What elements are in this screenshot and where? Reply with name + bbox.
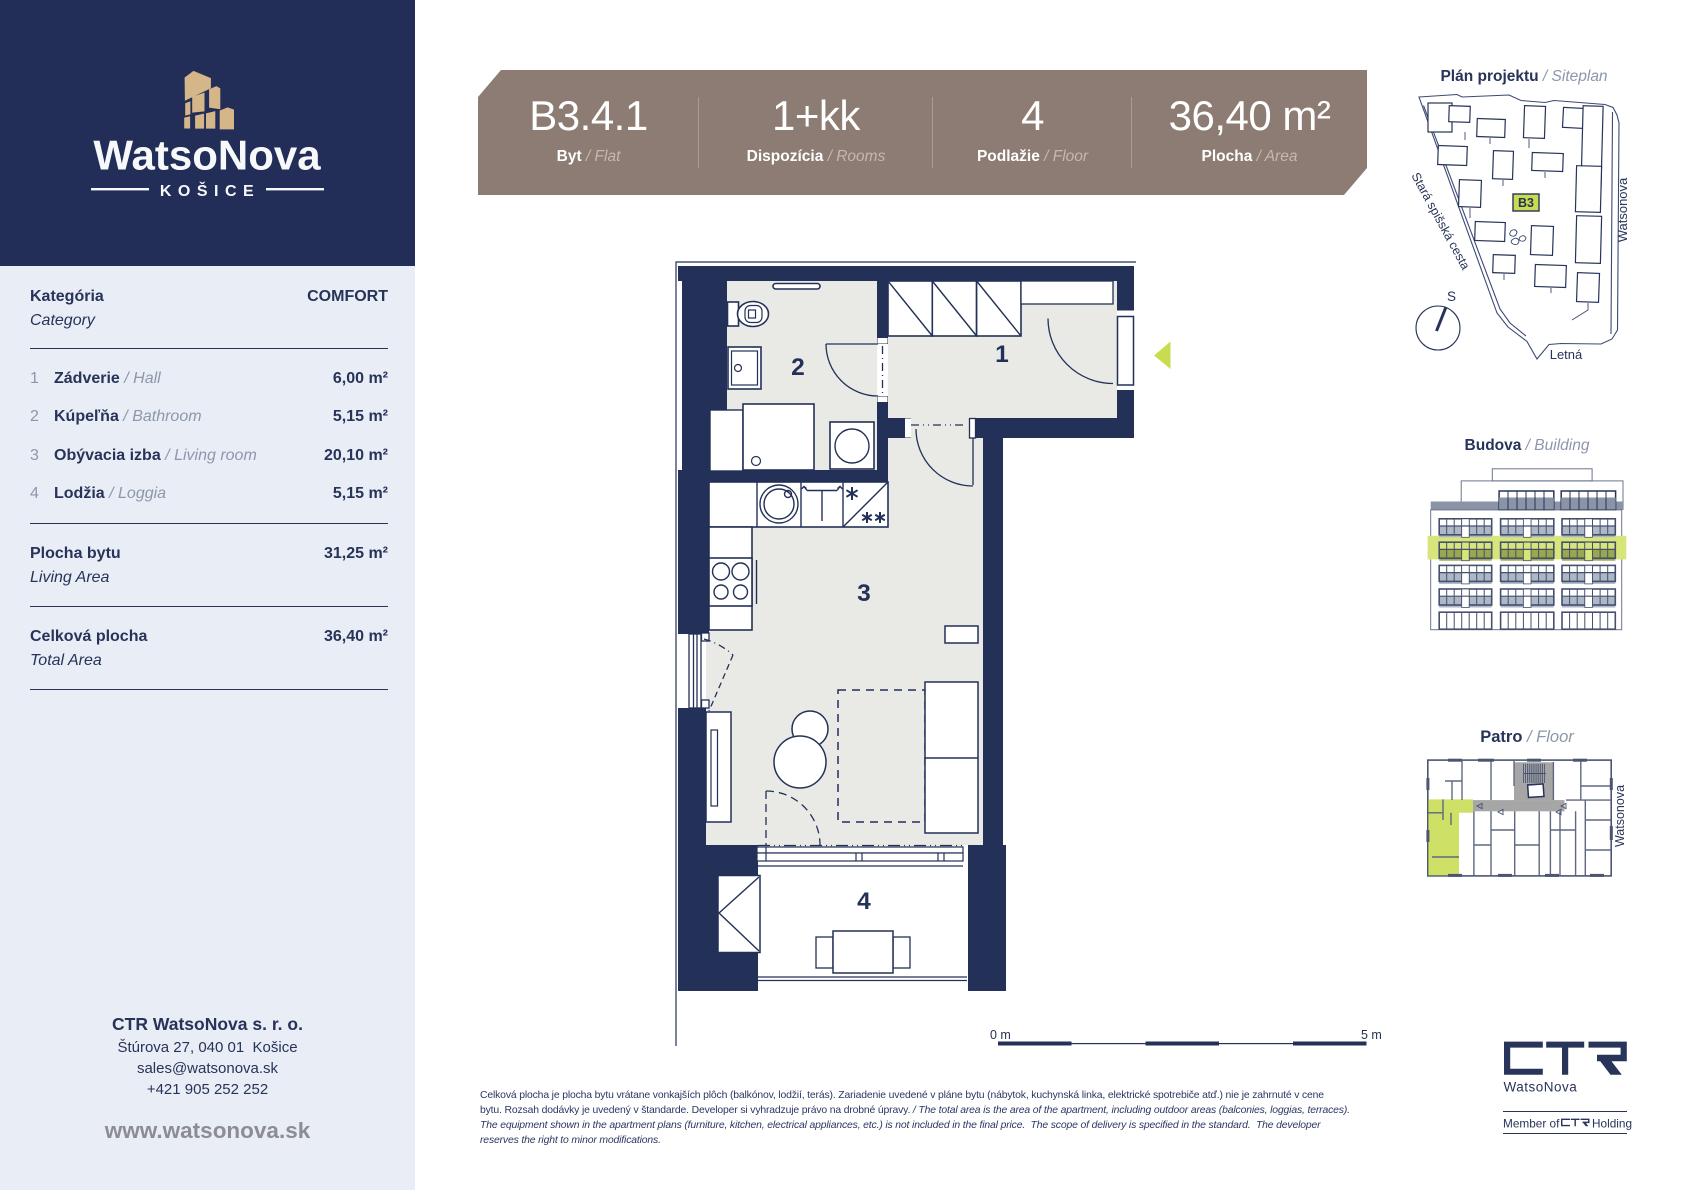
svg-text:Patro / Floor: Patro / Floor xyxy=(1480,728,1575,746)
svg-text:Holding: Holding xyxy=(1592,1117,1632,1131)
svg-text:3: 3 xyxy=(857,580,871,607)
svg-text:Letná: Letná xyxy=(1550,347,1583,362)
svg-text:Watsonova: Watsonova xyxy=(1615,177,1630,242)
svg-text:0 m: 0 m xyxy=(990,1028,1011,1042)
svg-text:B3: B3 xyxy=(1518,196,1534,210)
svg-text:2: 2 xyxy=(791,354,805,381)
svg-text:Member of: Member of xyxy=(1503,1117,1560,1131)
svg-text:1: 1 xyxy=(995,341,1009,368)
svg-text:S: S xyxy=(1447,289,1456,304)
svg-text:WatsoNova: WatsoNova xyxy=(1504,1080,1578,1095)
svg-text:5 m: 5 m xyxy=(1361,1028,1382,1042)
svg-text:Watsonova: Watsonova xyxy=(1613,785,1627,847)
svg-text:Plán projektu / Siteplan: Plán projektu / Siteplan xyxy=(1440,68,1607,85)
svg-text:Budova / Building: Budova / Building xyxy=(1465,437,1590,454)
svg-text:4: 4 xyxy=(857,888,871,915)
